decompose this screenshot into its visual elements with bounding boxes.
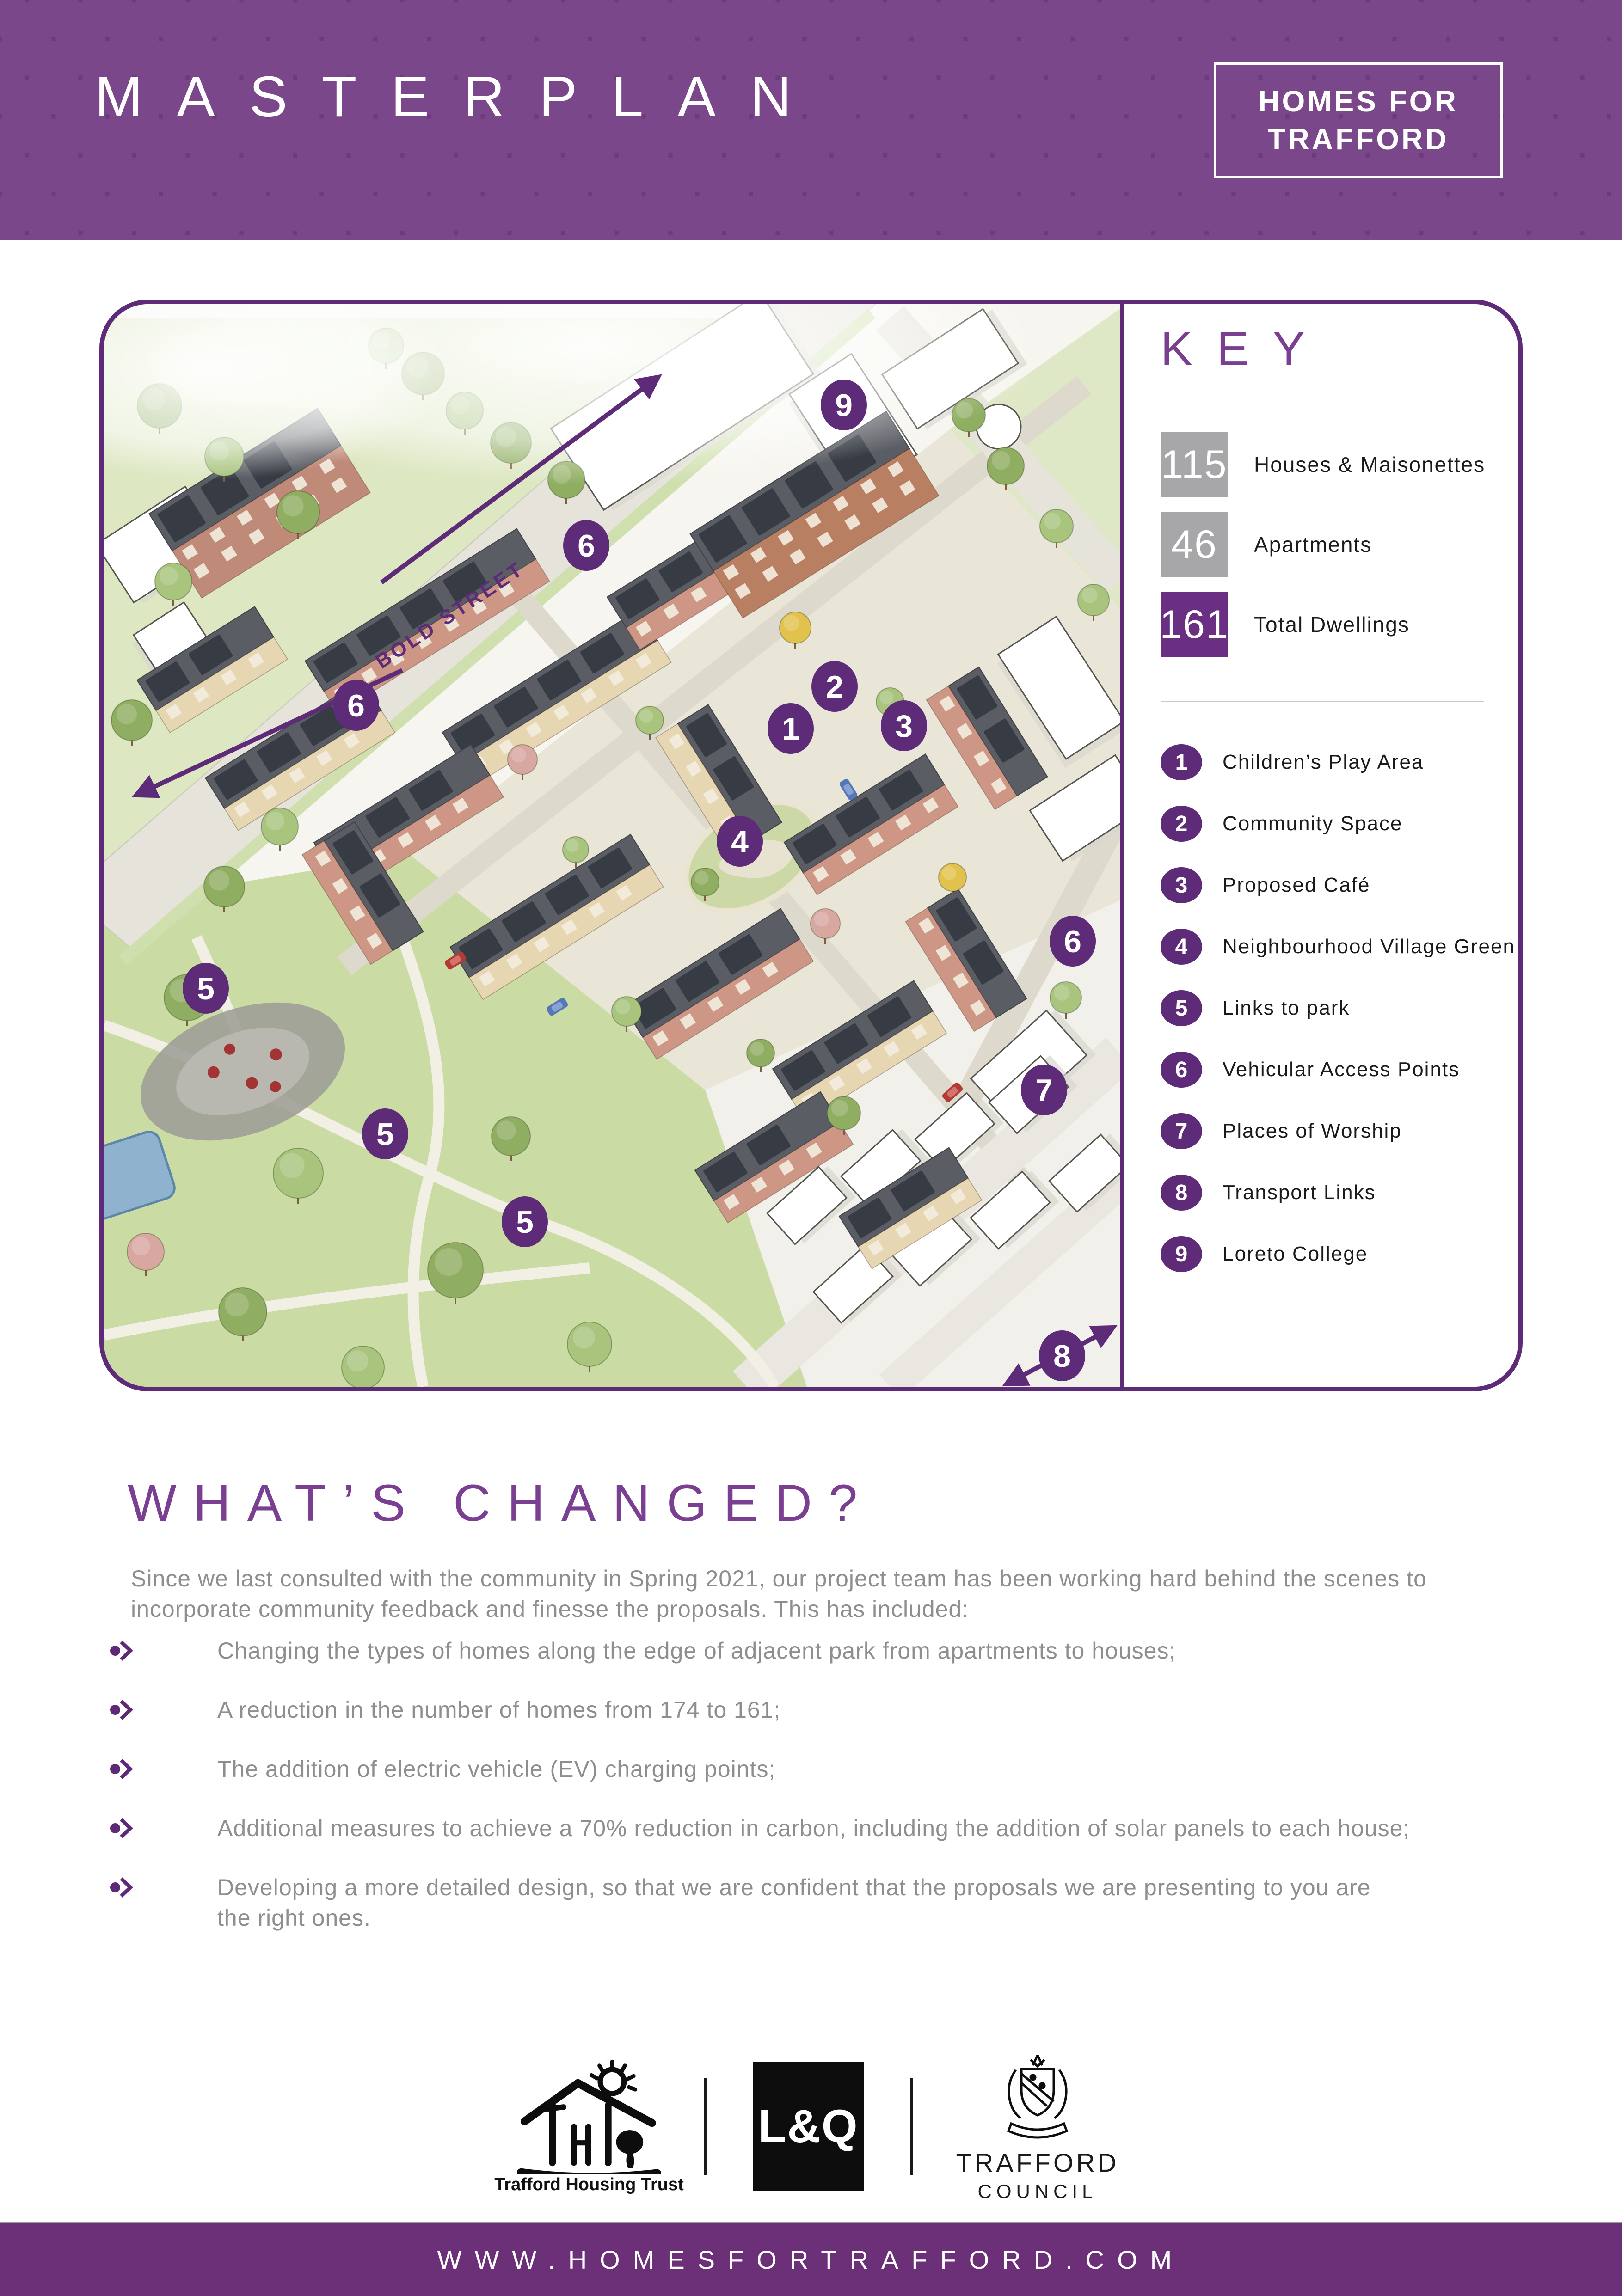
key-item-badge: 7 [1161, 1113, 1202, 1149]
svg-text:3: 3 [895, 709, 913, 744]
key-item-badge: 3 [1161, 867, 1202, 903]
key-item-label: Loreto College [1223, 1243, 1368, 1266]
key-item: 3Proposed Café [1161, 867, 1517, 903]
key-item-label: Transport Links [1223, 1181, 1376, 1204]
key-item: 6Vehicular Access Points [1161, 1052, 1517, 1088]
key-item-label: Neighbourhood Village Green [1223, 935, 1515, 958]
map-marker-6: 6 [1050, 916, 1096, 967]
partner-logos: Trafford Housing Trust L&Q TRAFFORD [0, 2048, 1622, 2205]
changed-bullet: Changing the types of homes along the ed… [109, 1635, 1450, 1666]
council-line-1: TRAFFORD [956, 2148, 1119, 2178]
trafford-council-logo: TRAFFORD COUNCIL [964, 2051, 1112, 2203]
arrow-bullet-icon [109, 1757, 134, 1782]
tht-house-icon [517, 2058, 661, 2174]
key-item: 1Children’s Play Area [1161, 744, 1517, 780]
key-item: 8Transport Links [1161, 1175, 1517, 1211]
key-stats: 115Houses & Maisonettes46Apartments161To… [1161, 432, 1512, 672]
key-item: 4Neighbourhood Village Green [1161, 929, 1517, 965]
key-item-badge: 8 [1161, 1175, 1202, 1211]
key-item-label: Community Space [1223, 812, 1402, 835]
logo-separator [704, 2078, 707, 2175]
stat-label: Total Dwellings [1254, 612, 1410, 637]
map-marker-5: 5 [362, 1108, 408, 1159]
svg-text:8: 8 [1053, 1339, 1071, 1374]
svg-text:1: 1 [782, 711, 799, 747]
arrow-bullet-icon [109, 1816, 134, 1841]
footer-bar: WWW.HOMESFORTRAFFORD.COM [0, 2222, 1622, 2296]
map-marker-6: 6 [563, 520, 609, 571]
bullet-text: A reduction in the number of homes from … [217, 1695, 1410, 1725]
whats-changed-intro: Since we last consulted with the communi… [131, 1563, 1553, 1624]
stat-value-box: 161 [1161, 592, 1228, 657]
arrow-bullet-icon [109, 1638, 134, 1663]
map-marker-2: 2 [811, 661, 858, 712]
whats-changed-title: WHAT’S CHANGED? [128, 1477, 874, 1529]
page-title: MASTERPLAN [95, 68, 826, 126]
svg-text:4: 4 [731, 824, 749, 859]
stat-value-box: 115 [1161, 432, 1228, 497]
key-item: 7Places of Worship [1161, 1113, 1517, 1149]
changed-bullet: Developing a more detailed design, so th… [109, 1872, 1450, 1933]
changed-bullet: A reduction in the number of homes from … [109, 1695, 1450, 1725]
key-title: KEY [1161, 325, 1329, 373]
key-item-label: Proposed Café [1223, 874, 1370, 897]
masterplan-panel: BOLD STREET 9662134657558 KEY 115Houses … [99, 300, 1523, 1391]
stat-label: Apartments [1254, 532, 1372, 557]
key-item-badge: 4 [1161, 929, 1202, 965]
arrow-bullet-icon [109, 1875, 134, 1900]
logo-separator [910, 2078, 913, 2175]
trafford-housing-trust-logo: Trafford Housing Trust [510, 2058, 668, 2195]
map-marker-7: 7 [1021, 1065, 1067, 1115]
bullet-text: The addition of electric vehicle (EV) ch… [217, 1754, 1410, 1784]
masterplan-map: BOLD STREET 9662134657558 [104, 304, 1120, 1387]
bullet-text: Developing a more detailed design, so th… [217, 1872, 1410, 1933]
key-item-label: Vehicular Access Points [1223, 1058, 1460, 1081]
key-stat-row: 46Apartments [1161, 512, 1512, 577]
changed-bullet: Additional measures to achieve a 70% red… [109, 1813, 1450, 1843]
key-stat-row: 161Total Dwellings [1161, 592, 1512, 657]
key-item-badge: 2 [1161, 806, 1202, 842]
key-items: 1Children’s Play Area2Community Space3Pr… [1161, 744, 1517, 1298]
council-crest-icon [989, 2051, 1086, 2143]
svg-text:6: 6 [347, 688, 365, 723]
svg-text:2: 2 [826, 669, 843, 704]
key-divider [1120, 304, 1124, 1387]
key-item-label: Places of Worship [1223, 1120, 1402, 1143]
key-item-badge: 5 [1161, 990, 1202, 1026]
bullet-text: Additional measures to achieve a 70% red… [217, 1813, 1410, 1843]
svg-text:7: 7 [1035, 1073, 1053, 1108]
homes-for-trafford-logo: HOMES FOR TRAFFORD [1214, 62, 1503, 178]
map-marker-9: 9 [821, 380, 867, 430]
svg-text:6: 6 [578, 528, 595, 563]
map-marker-6: 6 [333, 680, 379, 731]
arrow-bullet-icon [109, 1697, 134, 1722]
map-marker-4: 4 [717, 816, 763, 867]
masterplan-illustration: BOLD STREET 9662134657558 [104, 304, 1120, 1387]
logo-line-2: TRAFFORD [1268, 120, 1449, 158]
logo-line-1: HOMES FOR [1258, 82, 1458, 120]
tht-caption: Trafford Housing Trust [494, 2175, 684, 2195]
svg-text:6: 6 [1064, 924, 1081, 959]
key-item-label: Children’s Play Area [1223, 751, 1424, 774]
key-item-badge: 1 [1161, 744, 1202, 780]
changed-bullet: The addition of electric vehicle (EV) ch… [109, 1754, 1450, 1784]
key-item: 5Links to park [1161, 990, 1517, 1026]
whats-changed-list: Changing the types of homes along the ed… [109, 1635, 1450, 1962]
map-marker-1: 1 [768, 703, 814, 754]
lq-logo: L&Q [753, 2062, 864, 2191]
map-marker-5: 5 [183, 963, 229, 1014]
key-item: 2Community Space [1161, 806, 1517, 842]
map-marker-3: 3 [881, 700, 927, 751]
svg-text:5: 5 [376, 1117, 394, 1152]
key-item-badge: 6 [1161, 1052, 1202, 1088]
svg-text:5: 5 [516, 1205, 534, 1240]
map-marker-8: 8 [1039, 1330, 1085, 1381]
svg-text:5: 5 [197, 971, 215, 1006]
key-item-label: Links to park [1223, 997, 1350, 1020]
key-item: 9Loreto College [1161, 1236, 1517, 1272]
bullet-text: Changing the types of homes along the ed… [217, 1635, 1410, 1666]
stat-value-box: 46 [1161, 512, 1228, 577]
key-separator [1161, 701, 1484, 702]
svg-text:9: 9 [835, 388, 853, 423]
map-key: KEY 115Houses & Maisonettes46Apartments1… [1124, 304, 1518, 1387]
key-item-badge: 9 [1161, 1236, 1202, 1272]
council-line-2: COUNCIL [977, 2180, 1097, 2203]
website-url: WWW.HOMESFORTRAFFORD.COM [437, 2245, 1185, 2275]
key-stat-row: 115Houses & Maisonettes [1161, 432, 1512, 497]
map-marker-5: 5 [502, 1196, 548, 1247]
header: MASTERPLAN HOMES FOR TRAFFORD [0, 0, 1622, 240]
masterplan-page: MASTERPLAN HOMES FOR TRAFFORD [0, 0, 1622, 2296]
stat-label: Houses & Maisonettes [1254, 452, 1485, 477]
